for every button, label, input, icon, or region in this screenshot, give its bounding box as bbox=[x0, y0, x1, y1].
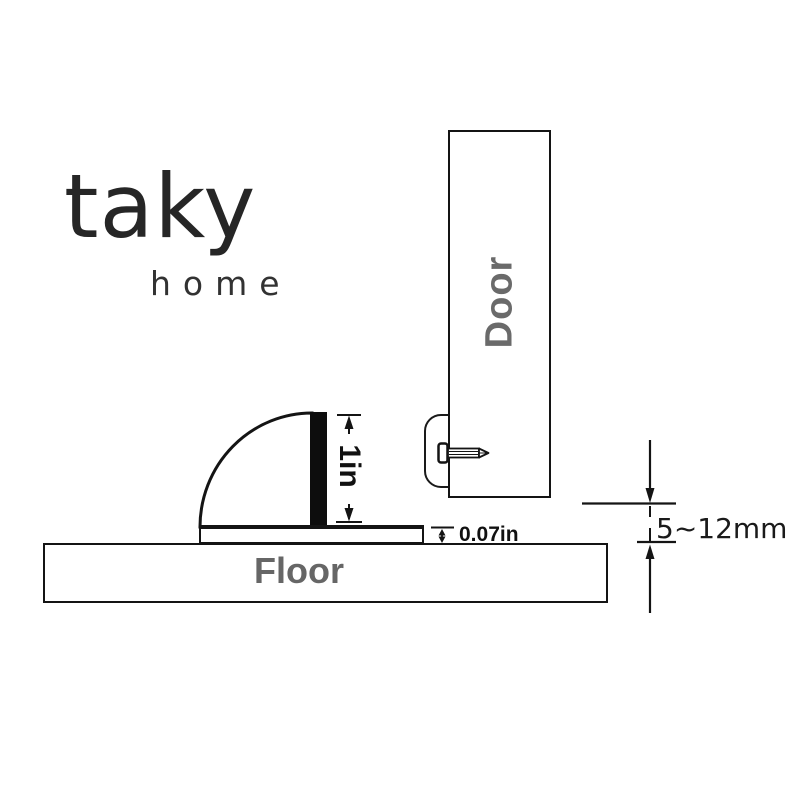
dim-base-thickness-arrows bbox=[426, 524, 460, 545]
dim-door-gap-label: 5~12mm bbox=[656, 512, 787, 545]
brand-tagline: home bbox=[150, 264, 292, 303]
dim-base-thickness-label: 0.07in bbox=[459, 523, 519, 547]
screw-icon bbox=[437, 442, 491, 464]
brand-logo: taky bbox=[64, 163, 256, 251]
door-stopper bbox=[198, 409, 428, 549]
floor-label: Floor bbox=[43, 550, 555, 592]
product-diagram: taky home Door Floor 1in 0.07 bbox=[0, 0, 800, 800]
door-label: Door bbox=[450, 251, 550, 354]
dim-stopper-height-label: 1in bbox=[324, 441, 374, 491]
